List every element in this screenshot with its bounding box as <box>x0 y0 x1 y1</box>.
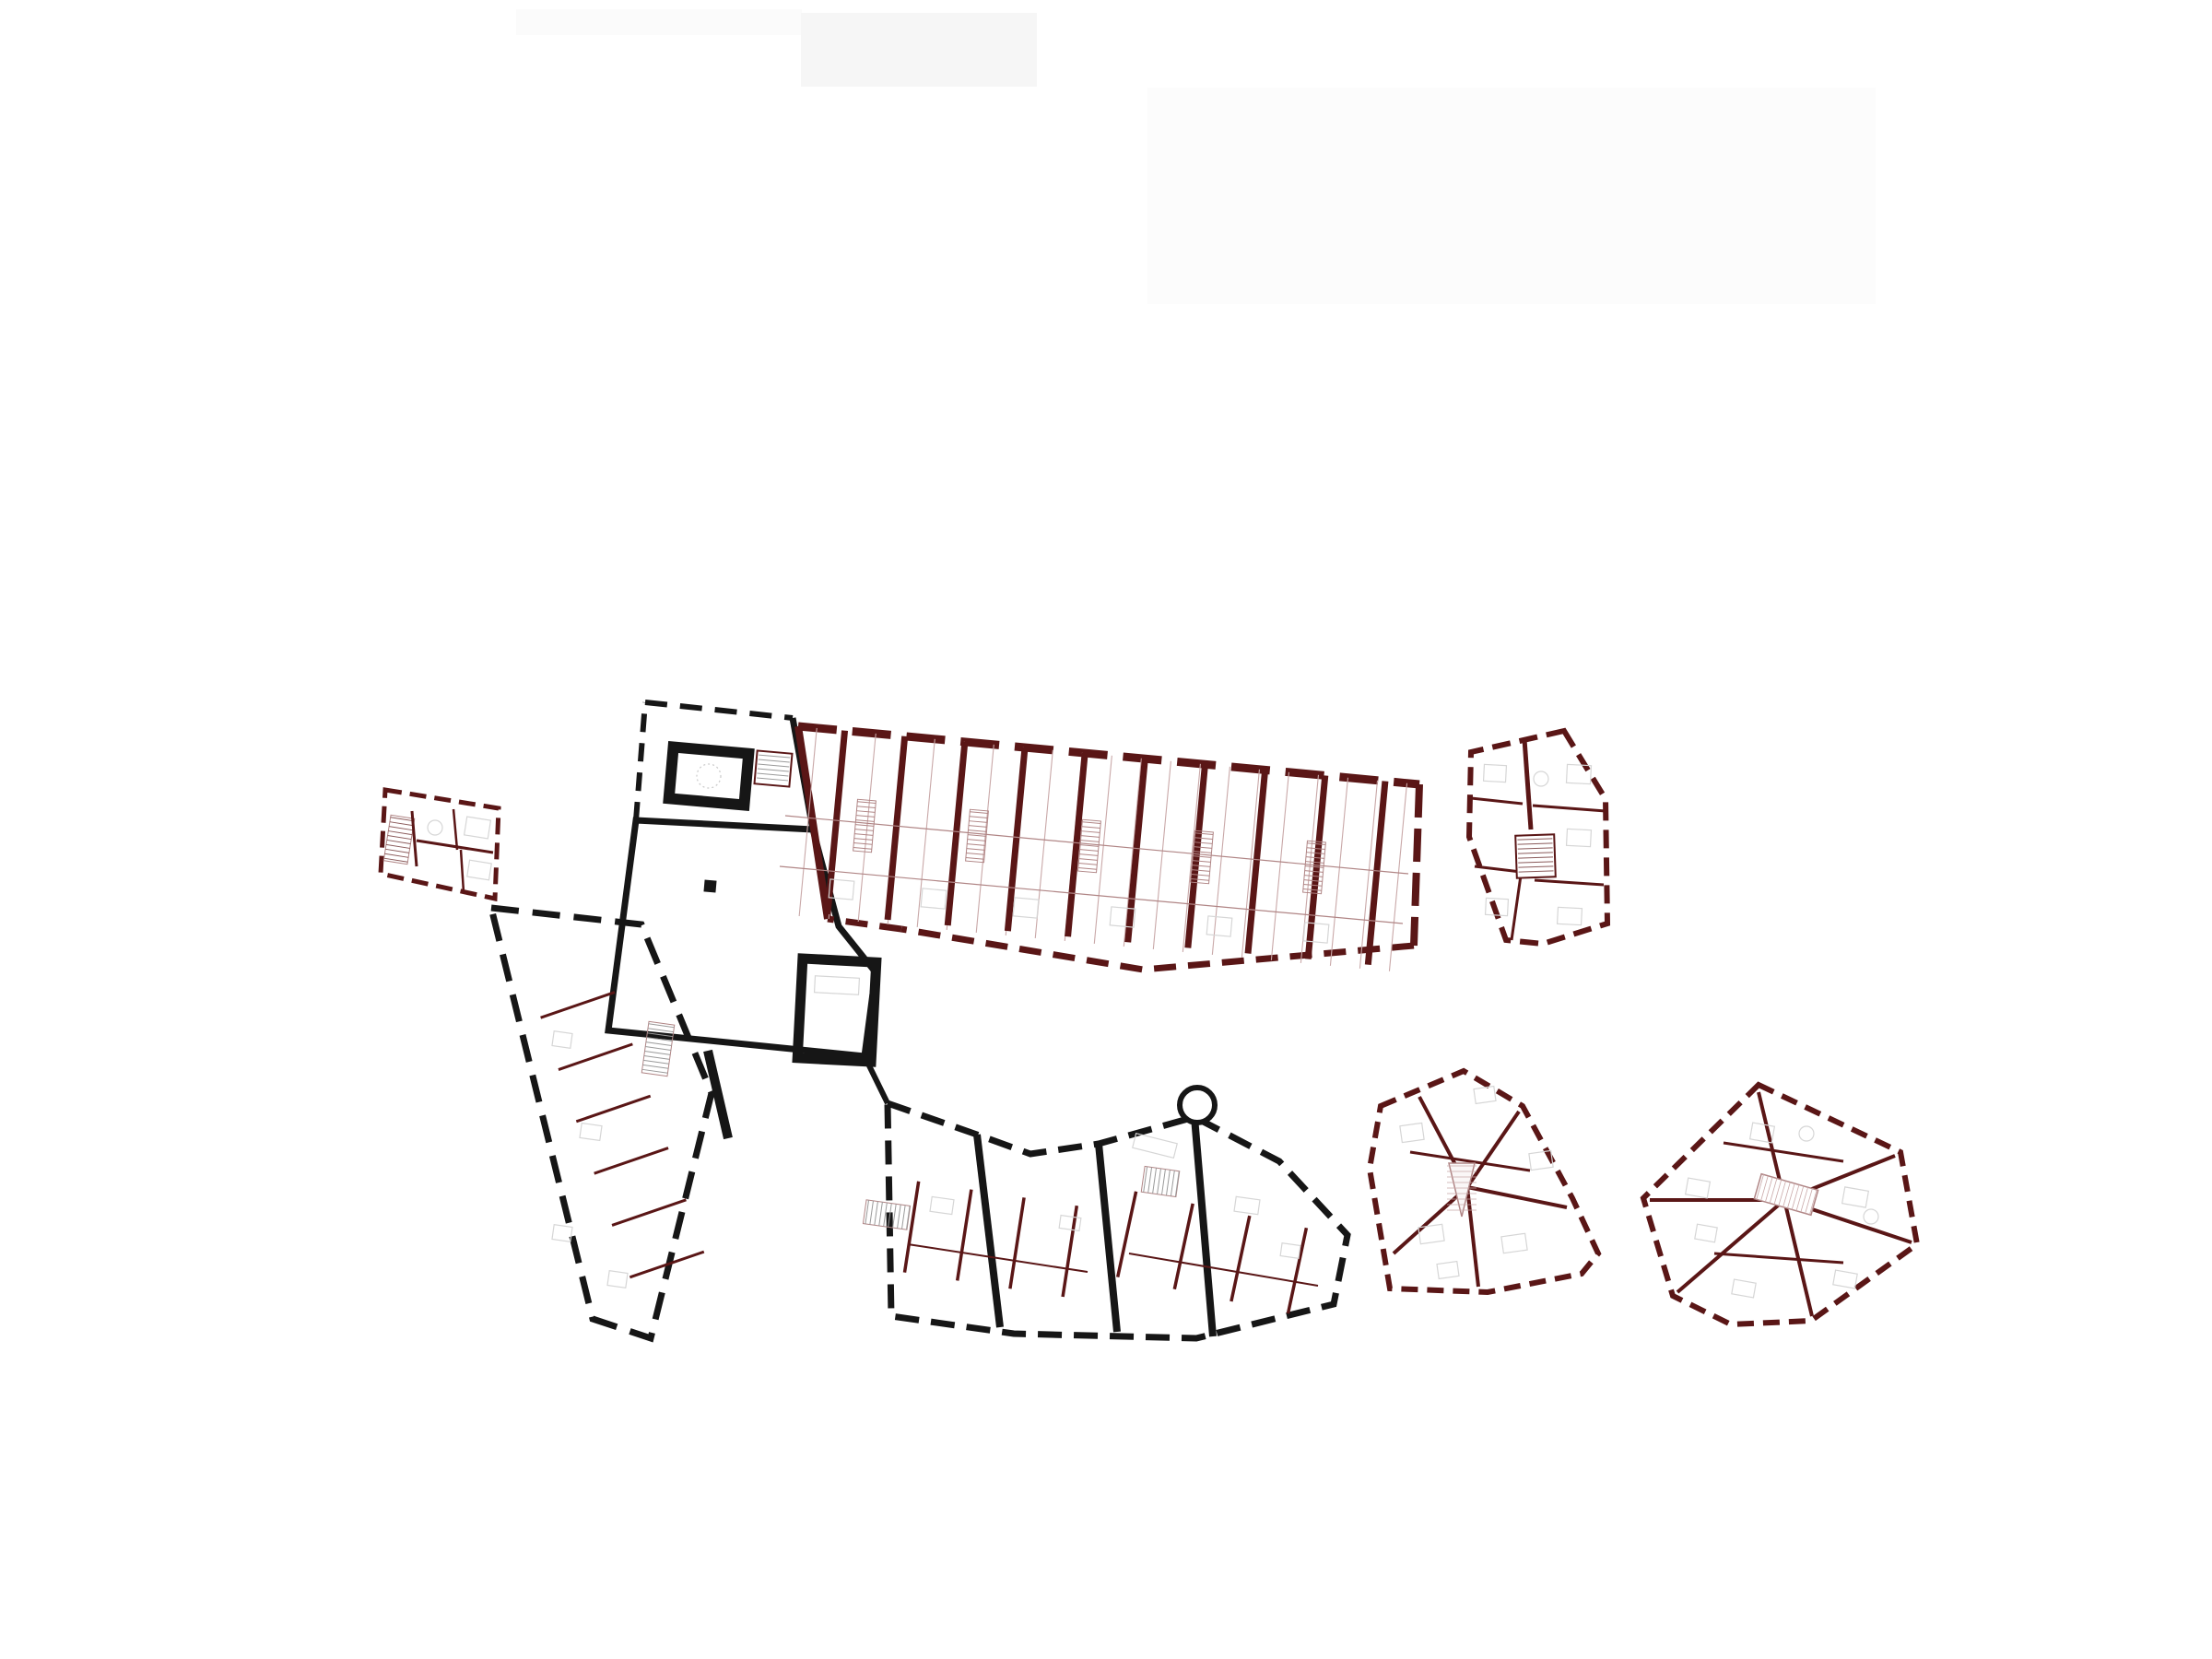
building-point-block-south-a <box>1370 1071 1598 1292</box>
building-point-block-north-east <box>1469 731 1607 944</box>
building-left-annex <box>381 790 499 899</box>
architectural-site-plan-canvas <box>0 0 2212 1659</box>
ghost-marks <box>516 9 1876 304</box>
plan-sheet <box>0 0 2212 1659</box>
building-main-complex-existing <box>491 702 888 1338</box>
building-lower-wing-existing <box>863 1088 1347 1338</box>
building-new-slab <box>780 726 1419 971</box>
building-point-block-south-b <box>1643 1085 1917 1324</box>
